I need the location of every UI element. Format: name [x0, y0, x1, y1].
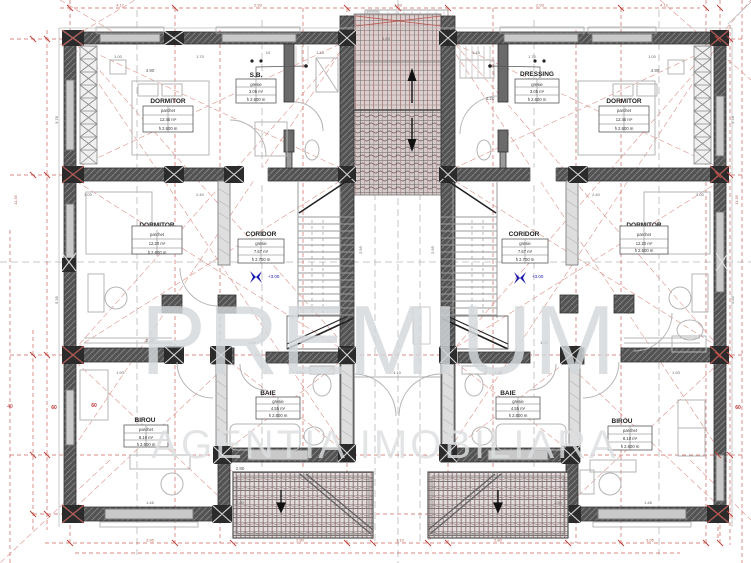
- svg-text:gresie: gresie: [255, 241, 267, 246]
- svg-text:+3.00: +3.00: [532, 274, 544, 279]
- svg-text:PREMIUM: PREMIUM: [141, 285, 618, 395]
- svg-text:1.46: 1.46: [146, 500, 155, 505]
- svg-text:3.00: 3.00: [696, 192, 705, 197]
- svg-text:12.20 m²: 12.20 m²: [149, 241, 166, 246]
- svg-text:2.40: 2.40: [592, 192, 601, 197]
- svg-text:2.93: 2.93: [254, 3, 263, 8]
- svg-text:5.35: 5.35: [54, 295, 59, 304]
- svg-text:12.45 m²: 12.45 m²: [616, 117, 633, 122]
- svg-text:2.95: 2.95: [430, 245, 435, 254]
- svg-text:2.40: 2.40: [196, 192, 205, 197]
- svg-text:gresie: gresie: [512, 399, 524, 404]
- svg-text:2.95: 2.95: [358, 245, 363, 254]
- svg-text:4.90: 4.90: [146, 68, 155, 73]
- svg-text:h 2.600 m: h 2.600 m: [509, 413, 528, 418]
- svg-text:h 2.700 m: h 2.700 m: [252, 257, 271, 262]
- svg-text:1.70: 1.70: [528, 54, 537, 59]
- svg-text:parchet: parchet: [161, 108, 176, 113]
- svg-text:h 2.600 m: h 2.600 m: [621, 444, 640, 449]
- svg-text:3.78: 3.78: [54, 115, 59, 124]
- svg-text:1.93: 1.93: [116, 370, 125, 375]
- svg-text:AGENTIA IMOBILIARA: AGENTIA IMOBILIARA: [151, 423, 618, 467]
- svg-text:h 2.600 m: h 2.600 m: [528, 97, 547, 102]
- svg-text:h 2.600 m: h 2.600 m: [247, 97, 266, 102]
- svg-text:1.93: 1.93: [672, 370, 681, 375]
- svg-text:h 2.600 m: h 2.600 m: [615, 126, 634, 131]
- svg-text:h 2.600 m: h 2.600 m: [269, 413, 288, 418]
- svg-text:49: 49: [7, 404, 13, 410]
- svg-text:gresie: gresie: [531, 82, 543, 87]
- svg-text:h 2.600 m: h 2.600 m: [635, 248, 654, 253]
- svg-text:DORMITOR: DORMITOR: [150, 98, 186, 105]
- svg-text:parchet: parchet: [150, 232, 165, 237]
- svg-text:7.67 m²: 7.67 m²: [254, 249, 269, 254]
- svg-text:parchet: parchet: [623, 428, 638, 433]
- svg-text:1.00: 1.00: [114, 54, 123, 59]
- svg-text:8.10 m²: 8.10 m²: [623, 436, 638, 441]
- svg-text:3.05 m²: 3.05 m²: [530, 89, 545, 94]
- svg-text:DORMITOR: DORMITOR: [606, 98, 642, 105]
- svg-text:4.55 m²: 4.55 m²: [511, 406, 526, 411]
- svg-text:4.17: 4.17: [660, 3, 669, 8]
- svg-text:4.17: 4.17: [116, 3, 125, 8]
- svg-text:2.50: 2.50: [236, 500, 245, 505]
- svg-text:4.20: 4.20: [486, 96, 495, 101]
- svg-text:60: 60: [91, 403, 97, 409]
- svg-text:3.05 m²: 3.05 m²: [249, 89, 264, 94]
- svg-text:1.70: 1.70: [196, 54, 205, 59]
- svg-text:3.95: 3.95: [646, 538, 655, 543]
- svg-text:h 2.600 m: h 2.600 m: [159, 126, 178, 131]
- svg-text:1.13: 1.13: [472, 50, 481, 55]
- svg-text:2.80: 2.80: [296, 538, 305, 543]
- svg-text:CORIDOR: CORIDOR: [509, 231, 540, 238]
- svg-text:+3.00: +3.00: [268, 274, 280, 279]
- svg-text:2.80: 2.80: [494, 538, 503, 543]
- svg-text:2.50: 2.50: [554, 500, 563, 505]
- svg-text:12.45 m²: 12.45 m²: [160, 117, 177, 122]
- svg-text:10: 10: [266, 50, 271, 55]
- svg-text:h 2.600 m: h 2.600 m: [148, 250, 167, 255]
- svg-text:gresie: gresie: [272, 399, 284, 404]
- svg-text:11.35: 11.35: [734, 194, 739, 204]
- svg-text:5.35: 5.35: [730, 295, 735, 304]
- svg-text:h 2.700 m: h 2.700 m: [516, 257, 535, 262]
- svg-text:1.10: 1.10: [396, 538, 405, 543]
- svg-text:parchet: parchet: [617, 108, 632, 113]
- svg-text:gresie: gresie: [250, 82, 262, 87]
- svg-text:DRESSING: DRESSING: [520, 71, 554, 78]
- svg-text:1.13: 1.13: [316, 50, 325, 55]
- svg-text:2.93: 2.93: [536, 3, 545, 8]
- svg-text:parchet: parchet: [637, 232, 652, 237]
- svg-text:3.00: 3.00: [84, 192, 93, 197]
- svg-text:12.20 m²: 12.20 m²: [636, 241, 653, 246]
- svg-text:1.83: 1.83: [382, 36, 391, 41]
- svg-text:60: 60: [735, 405, 741, 411]
- svg-text:4.55 m²: 4.55 m²: [271, 406, 286, 411]
- svg-text:11.35: 11.35: [13, 194, 18, 204]
- svg-text:gresie: gresie: [519, 241, 531, 246]
- svg-text:1.83: 1.83: [394, 3, 403, 8]
- svg-text:60: 60: [51, 405, 57, 411]
- svg-text:3.95: 3.95: [146, 538, 155, 543]
- svg-text:4.90: 4.90: [651, 68, 660, 73]
- svg-text:CORIDOR: CORIDOR: [246, 231, 277, 238]
- svg-text:1.46: 1.46: [644, 500, 653, 505]
- svg-text:1.00: 1.00: [648, 54, 657, 59]
- svg-text:3.78: 3.78: [730, 115, 735, 124]
- svg-text:7.67 m²: 7.67 m²: [518, 249, 533, 254]
